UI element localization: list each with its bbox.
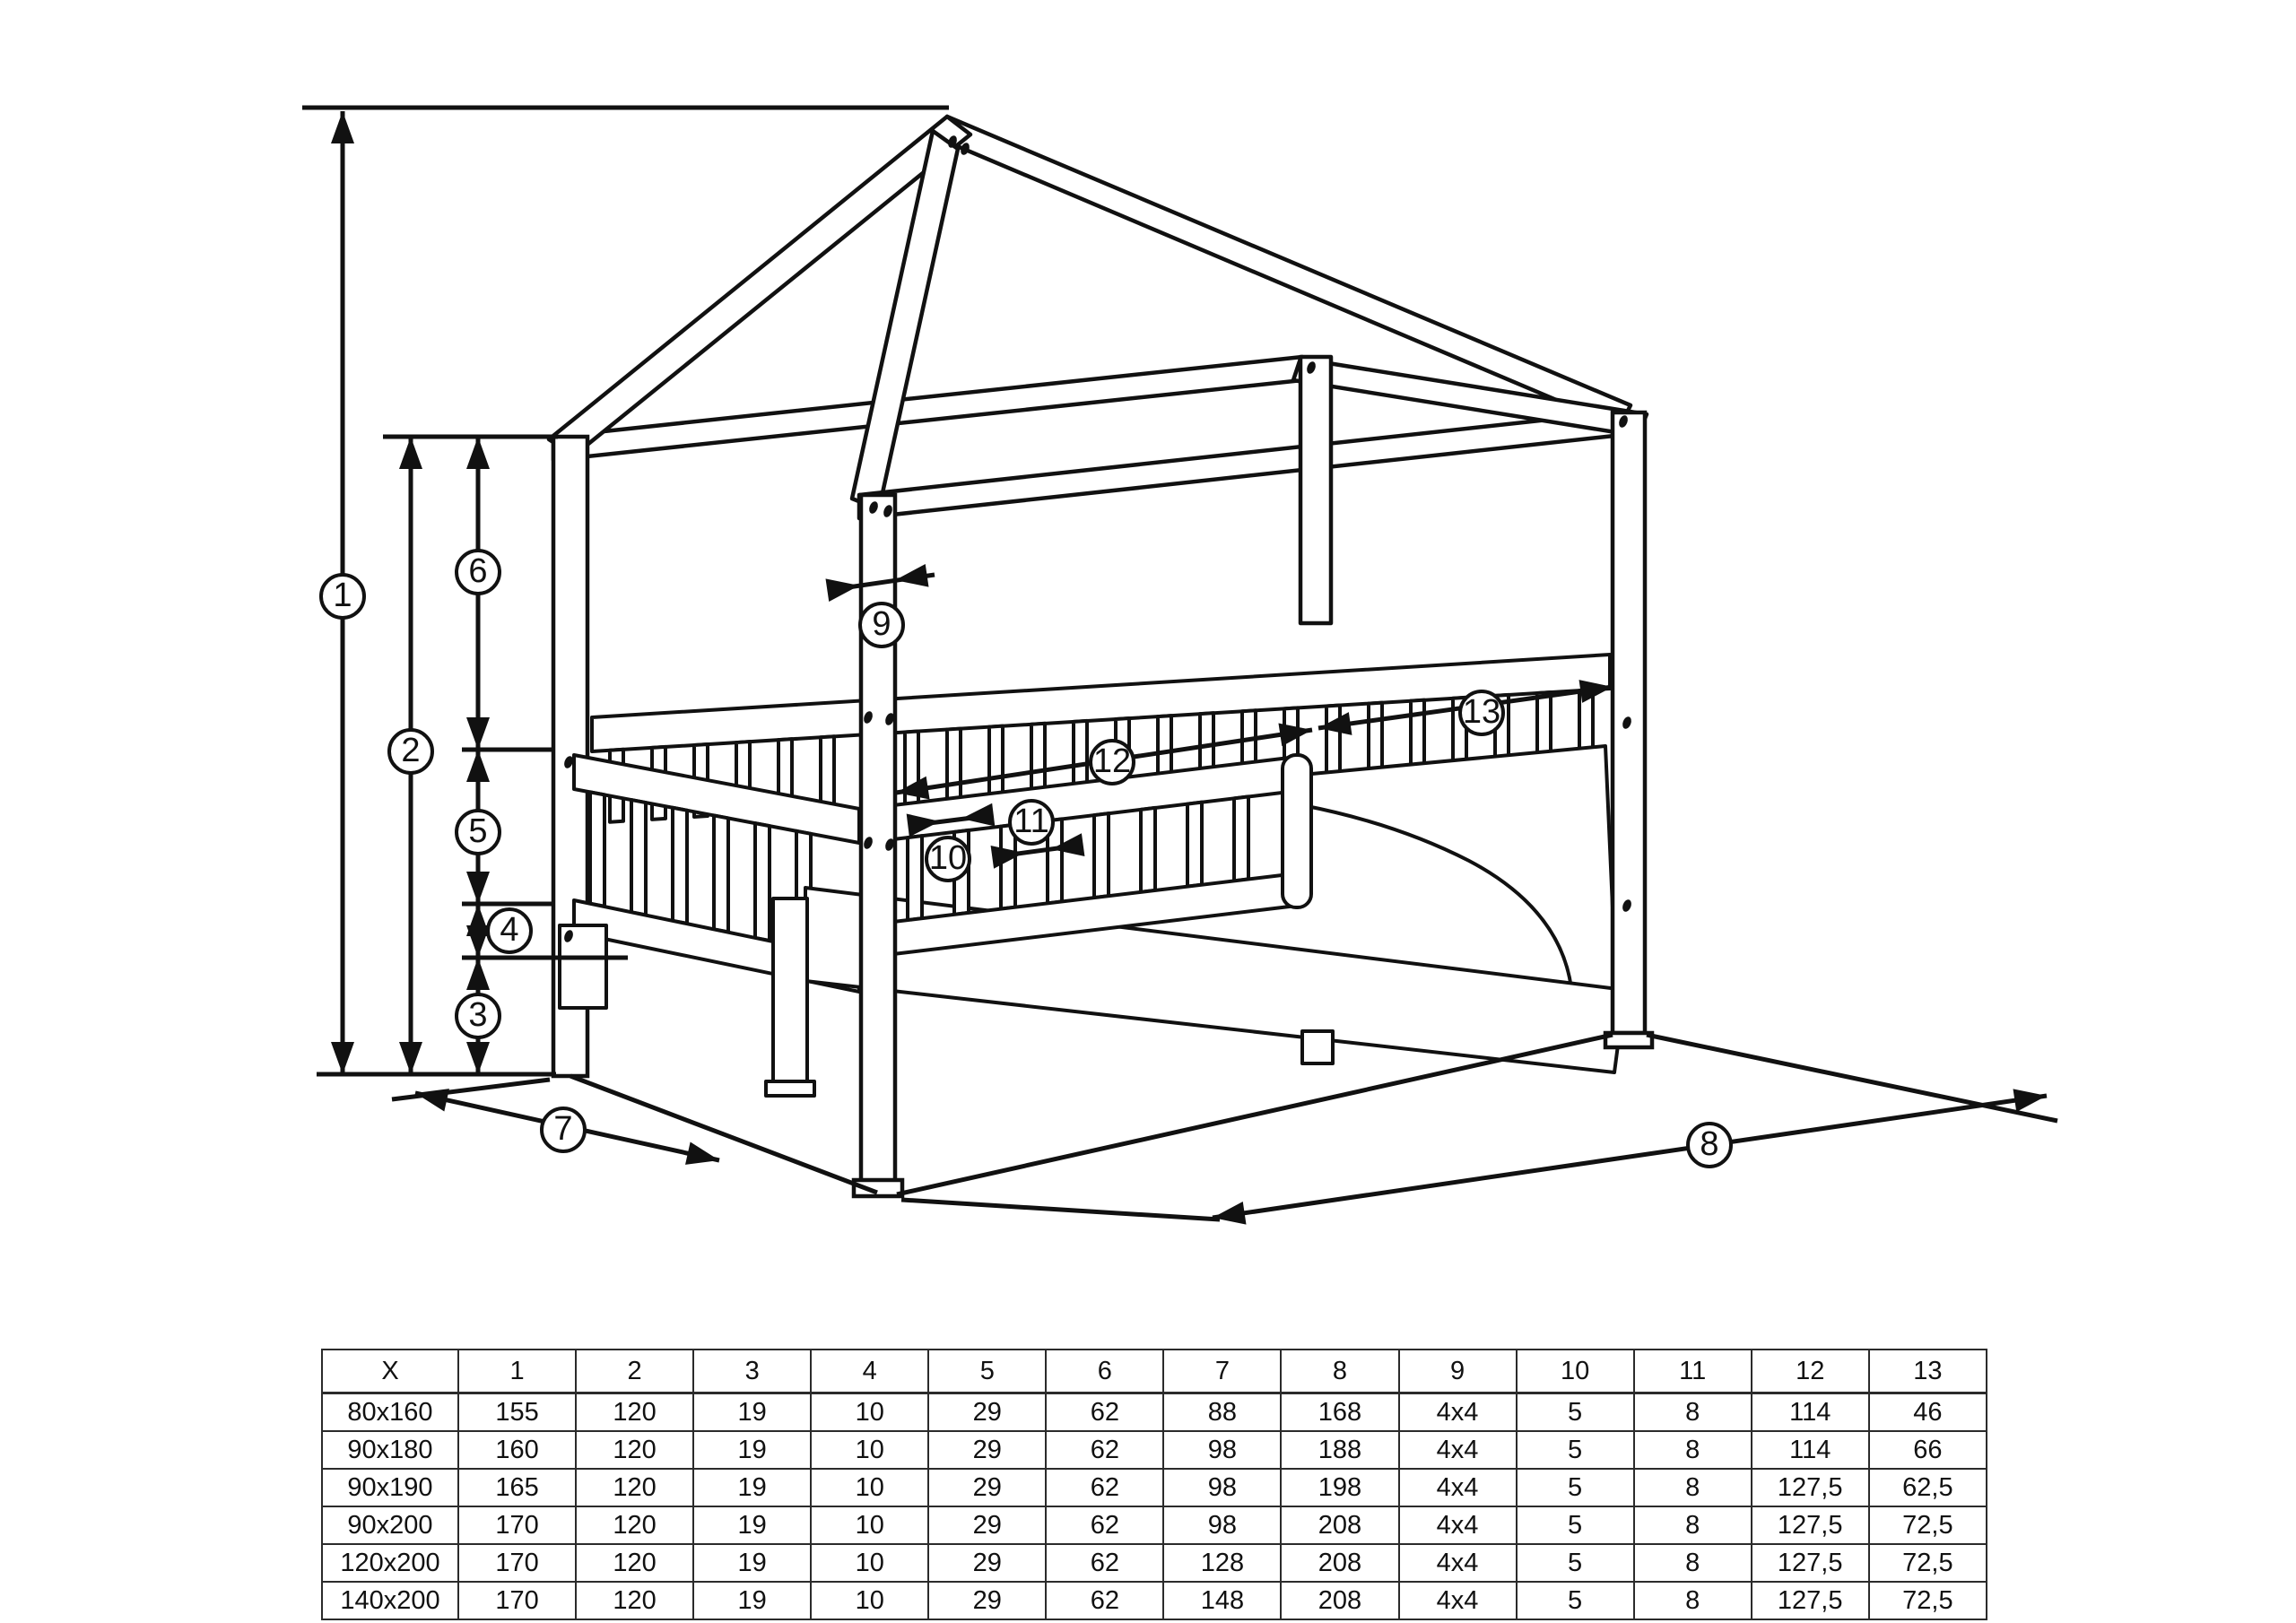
table-cell: 10 <box>811 1582 928 1619</box>
table-cell: 62 <box>1046 1469 1163 1506</box>
table-cell: 29 <box>928 1506 1046 1544</box>
table-cell: 98 <box>1163 1506 1281 1544</box>
table-cell: 114 <box>1752 1393 1869 1432</box>
callout-2: 2 <box>387 728 434 775</box>
head-rail-slat <box>714 815 728 932</box>
table-cell: 98 <box>1163 1431 1281 1469</box>
table-cell: 5 <box>1517 1506 1634 1544</box>
table-cell: 188 <box>1281 1431 1398 1469</box>
table-cell: 140x200 <box>322 1582 458 1619</box>
table-cell: 8 <box>1634 1506 1752 1544</box>
table-cell: 8 <box>1634 1582 1752 1619</box>
table-cell: 120 <box>576 1469 693 1506</box>
table-cell: 120 <box>576 1582 693 1619</box>
right-floor-extension <box>1647 1035 2057 1121</box>
front-rail-end-bar <box>1283 755 1311 907</box>
table-row: 90x20017012019102962982084x458127,572,5 <box>322 1506 1987 1544</box>
table-cell: 127,5 <box>1752 1506 1869 1544</box>
table-cell: 4x4 <box>1399 1544 1517 1582</box>
table-cell: 168 <box>1281 1393 1398 1432</box>
table-cell: 66 <box>1869 1431 1987 1469</box>
table-cell: 120x200 <box>322 1544 458 1582</box>
table-cell: 62,5 <box>1869 1469 1987 1506</box>
arrowhead <box>466 750 490 782</box>
table-cell: 72,5 <box>1869 1582 1987 1619</box>
table-cell: 170 <box>458 1506 576 1544</box>
table-cell: 4x4 <box>1399 1469 1517 1506</box>
technical-drawing-page: 12345678910111213 X1234567891011121380x1… <box>0 0 2296 1623</box>
front-rail-slat <box>1094 813 1109 898</box>
table-cell: 80x160 <box>322 1393 458 1432</box>
table-cell: 10 <box>811 1544 928 1582</box>
table-header-cell: 5 <box>928 1350 1046 1393</box>
table-cell: 120 <box>576 1393 693 1432</box>
roof-frame <box>549 117 1647 623</box>
head-rail-slat <box>673 808 687 924</box>
table-cell: 127,5 <box>1752 1544 1869 1582</box>
table-cell: 10 <box>811 1431 928 1469</box>
center-support-leg <box>1302 1031 1333 1063</box>
table-cell: 29 <box>928 1469 1046 1506</box>
table-row: 90x19016512019102962981984x458127,562,5 <box>322 1469 1987 1506</box>
arrowhead <box>331 111 354 143</box>
table-header-cell: 9 <box>1399 1350 1517 1393</box>
table-cell: 19 <box>693 1506 811 1544</box>
table-row: 120x200170120191029621282084x458127,572,… <box>322 1544 1987 1582</box>
dimension-table: X1234567891011121380x1601551201910296288… <box>321 1349 1987 1620</box>
table-cell: 29 <box>928 1431 1046 1469</box>
table-cell: 8 <box>1634 1544 1752 1582</box>
table-cell: 198 <box>1281 1469 1398 1506</box>
table-cell: 128 <box>1163 1544 1281 1582</box>
table-cell: 165 <box>458 1469 576 1506</box>
table-header-row: X12345678910111213 <box>322 1350 1987 1393</box>
table-cell: 160 <box>458 1431 576 1469</box>
callout-3: 3 <box>455 993 501 1039</box>
table-cell: 19 <box>693 1469 811 1506</box>
arrowhead <box>399 1042 422 1074</box>
table-cell: 4x4 <box>1399 1506 1517 1544</box>
table-header-cell: 7 <box>1163 1350 1281 1393</box>
table-cell: 10 <box>811 1506 928 1544</box>
callout-6: 6 <box>455 549 501 595</box>
table-cell: 90x190 <box>322 1469 458 1506</box>
table-header-cell: 12 <box>1752 1350 1869 1393</box>
front-left-bed-leg-foot <box>766 1081 814 1096</box>
table-cell: 19 <box>693 1393 811 1432</box>
back-right-post <box>1300 357 1331 623</box>
callout-12: 12 <box>1089 739 1135 785</box>
table-cell: 127,5 <box>1752 1469 1869 1506</box>
table-header-cell: 3 <box>693 1350 811 1393</box>
arrowhead <box>685 1142 722 1172</box>
callout-13: 13 <box>1458 690 1505 736</box>
table-cell: 5 <box>1517 1431 1634 1469</box>
arrowhead <box>466 717 490 750</box>
callout-4: 4 <box>486 907 533 954</box>
callout-11: 11 <box>1008 799 1055 846</box>
table-cell: 29 <box>928 1544 1046 1582</box>
table-cell: 72,5 <box>1869 1506 1987 1544</box>
table-cell: 155 <box>458 1393 576 1432</box>
table-cell: 46 <box>1869 1393 1987 1432</box>
dim7-extension <box>392 1080 550 1099</box>
dim8-extension-left <box>901 1200 1220 1219</box>
back-rail-slat <box>989 726 1003 799</box>
table-cell: 208 <box>1281 1506 1398 1544</box>
mattress <box>1302 746 1616 988</box>
head-rail-slat <box>755 823 770 941</box>
table-row: 140x200170120191029621482084x458127,572,… <box>322 1582 1987 1619</box>
table-cell: 98 <box>1163 1469 1281 1506</box>
table-header-cell: 6 <box>1046 1350 1163 1393</box>
head-rail-slat <box>631 800 646 915</box>
front-rail-slat <box>1187 803 1202 887</box>
back-rail-slat <box>821 736 834 809</box>
table-cell: 170 <box>458 1544 576 1582</box>
front-rail-slat <box>1234 796 1248 881</box>
table-cell: 120 <box>576 1431 693 1469</box>
table-cell: 4x4 <box>1399 1431 1517 1469</box>
arrowhead <box>466 437 490 469</box>
table-cell: 5 <box>1517 1393 1634 1432</box>
table-cell: 88 <box>1163 1393 1281 1432</box>
table-cell: 5 <box>1517 1469 1634 1506</box>
table-cell: 148 <box>1163 1582 1281 1619</box>
table-row: 90x18016012019102962981884x45811466 <box>322 1431 1987 1469</box>
callout-8: 8 <box>1686 1122 1733 1168</box>
table-cell: 208 <box>1281 1544 1398 1582</box>
back-rail-slat <box>1031 724 1045 796</box>
table-cell: 62 <box>1046 1431 1163 1469</box>
table-cell: 5 <box>1517 1582 1634 1619</box>
table-cell: 127,5 <box>1752 1582 1869 1619</box>
dim8-line <box>1213 1096 2047 1218</box>
table-cell: 10 <box>811 1469 928 1506</box>
table-cell: 208 <box>1281 1582 1398 1619</box>
table-header-cell: 8 <box>1281 1350 1398 1393</box>
table-cell: 4x4 <box>1399 1393 1517 1432</box>
front-floor-edge <box>897 1035 1613 1194</box>
table-cell: 62 <box>1046 1506 1163 1544</box>
table-cell: 8 <box>1634 1393 1752 1432</box>
table-cell: 90x200 <box>322 1506 458 1544</box>
back-rail-slat <box>947 729 961 802</box>
table-cell: 5 <box>1517 1544 1634 1582</box>
callout-10: 10 <box>925 836 971 882</box>
table-header-cell: 10 <box>1517 1350 1634 1393</box>
table-cell: 4x4 <box>1399 1582 1517 1619</box>
table-cell: 120 <box>576 1544 693 1582</box>
table-cell: 29 <box>928 1582 1046 1619</box>
table-cell: 90x180 <box>322 1431 458 1469</box>
callout-5: 5 <box>455 809 501 855</box>
table-header-cell: 2 <box>576 1350 693 1393</box>
head-rail-slat <box>590 792 604 906</box>
table-cell: 19 <box>693 1544 811 1582</box>
head-floor-edge <box>570 1076 877 1193</box>
table-cell: 29 <box>928 1393 1046 1432</box>
table-cell: 10 <box>811 1393 928 1432</box>
back-rail-slat <box>1369 703 1382 776</box>
table-cell: 62 <box>1046 1393 1163 1432</box>
callout-9: 9 <box>858 602 905 648</box>
table-cell: 170 <box>458 1582 576 1619</box>
table-cell: 120 <box>576 1506 693 1544</box>
arrowhead <box>466 1042 490 1074</box>
callout-7: 7 <box>540 1107 587 1153</box>
table-cell: 62 <box>1046 1544 1163 1582</box>
front-left-bed-leg <box>773 898 807 1081</box>
dimension-table-body: X1234567891011121380x1601551201910296288… <box>322 1350 1987 1619</box>
table-cell: 19 <box>693 1431 811 1469</box>
front-top-plate-beam <box>859 412 1614 518</box>
callout-1: 1 <box>319 573 366 620</box>
table-cell: 19 <box>693 1582 811 1619</box>
arrowhead <box>466 872 490 904</box>
table-header-cell: X <box>322 1350 458 1393</box>
table-header-cell: 13 <box>1869 1350 1987 1393</box>
table-cell: 114 <box>1752 1431 1869 1469</box>
arrowhead <box>466 958 490 990</box>
table-cell: 62 <box>1046 1582 1163 1619</box>
table-header-cell: 11 <box>1634 1350 1752 1393</box>
table-row: 80x16015512019102962881684x45811446 <box>322 1393 1987 1432</box>
table-cell: 72,5 <box>1869 1544 1987 1582</box>
back-rail-slat <box>1326 705 1340 777</box>
front-rail-slat <box>1141 808 1155 892</box>
front-rail-slat <box>908 836 922 920</box>
table-header-cell: 1 <box>458 1350 576 1393</box>
table-cell: 8 <box>1634 1431 1752 1469</box>
table-header-cell: 4 <box>811 1350 928 1393</box>
table-cell: 8 <box>1634 1469 1752 1506</box>
arrowhead <box>331 1042 354 1074</box>
arrowhead <box>399 437 422 469</box>
